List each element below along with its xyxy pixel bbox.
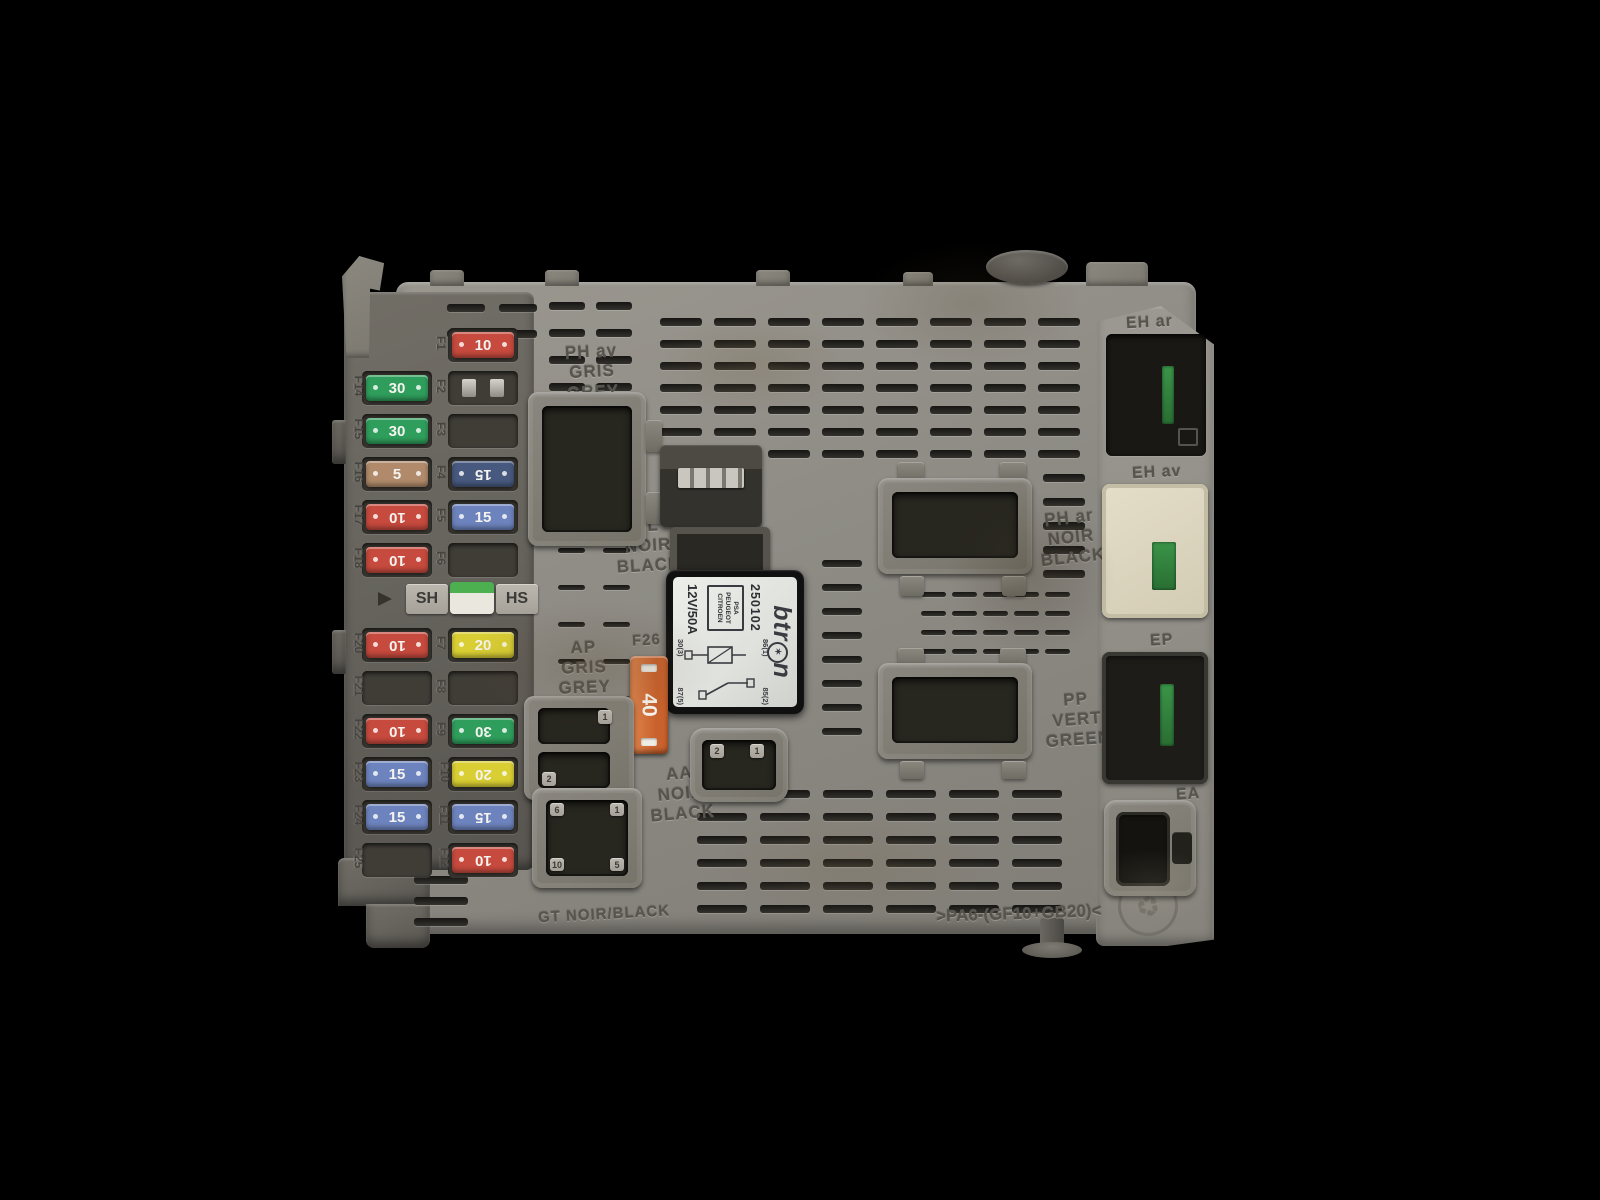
slot-label-F2: F2 [434, 379, 448, 393]
hs-plaque: HS [496, 584, 538, 614]
slot-label-F25: F25 [351, 848, 365, 869]
relay-label: btr✶n 250102 PSA PEUGEOT CITROEN 12V/50A [673, 577, 797, 707]
relay-pin-label: 87(5) [676, 687, 685, 705]
slot-label-F18: F18 [351, 548, 365, 569]
ap-pin-number: 1 [598, 710, 612, 724]
fuse-slot-F25 [362, 843, 432, 877]
slot-label-F12: F12 [437, 848, 451, 869]
pp-latch [900, 761, 924, 779]
ph-ar-cavity [892, 492, 1018, 558]
gt-pin-number: 10 [550, 858, 564, 871]
gt-pin-number: 5 [610, 858, 624, 871]
slot-label-F20: F20 [351, 633, 365, 654]
pin-number: 6 [554, 805, 559, 815]
relay-label-content: btr✶n 250102 PSA PEUGEOT CITROEN 12V/50A [674, 577, 796, 707]
fuse-F16: 5 [366, 461, 428, 487]
fuse-value: 10 [475, 852, 492, 869]
slot-label-F16: F16 [351, 462, 365, 483]
slot-label-F5: F5 [434, 508, 448, 522]
maxi-fuse-value: 40 [637, 693, 661, 716]
ea-side-tab [1172, 832, 1192, 864]
fuse-F5: 15 [452, 504, 514, 530]
oem-line: CITROEN [715, 587, 723, 629]
fuse-value: 10 [389, 509, 406, 526]
fuse-F22: 10 [366, 718, 428, 744]
slot-label-F21: F21 [351, 676, 365, 697]
fuse-slot-F21 [362, 671, 432, 705]
latch-arrow [378, 592, 392, 606]
fuse-F18: 10 [366, 547, 428, 573]
product-photo-stage: 101515303051010203020151010101515F14F15F… [0, 0, 1600, 1200]
label-text: EH ar [1126, 313, 1174, 332]
fuse-F14: 30 [366, 375, 428, 401]
label-ph-ar: PH ar NOIR BLACK [1031, 504, 1111, 571]
pp-latch [1002, 761, 1026, 779]
fuse-F11: 15 [452, 804, 514, 830]
slot-label-F3: F3 [434, 422, 448, 436]
slot-label-F24: F24 [351, 805, 365, 826]
slot-label-F22: F22 [351, 719, 365, 740]
fuse-clip [462, 379, 476, 397]
sh-plaque: SH [406, 584, 448, 614]
fuse-slot-F3 [448, 414, 518, 448]
label-line: GRIS [546, 657, 623, 680]
slot-label-F4: F4 [434, 465, 448, 479]
fuse-slot-F2 [448, 371, 518, 405]
label-text: EP [1150, 631, 1174, 649]
ep-pcb [1160, 684, 1174, 746]
fuse-value: 10 [389, 552, 406, 569]
slot-label-F10: F10 [437, 762, 451, 783]
ph-av-cavity [542, 406, 632, 532]
ph-ar-latch [900, 576, 924, 596]
relay-pin-label: 86(1) [761, 639, 770, 657]
label-text: F26 [632, 631, 662, 649]
fuse-value: 15 [389, 766, 406, 783]
fuse-F4: 15 [452, 461, 514, 487]
ea-connector [1116, 812, 1170, 886]
fuse-F17: 10 [366, 504, 428, 530]
sh-label: SH [416, 590, 438, 608]
label-ap: AP GRIS GREY [545, 637, 623, 700]
ph-ar-latch [1002, 576, 1026, 596]
fuse-F15: 30 [366, 418, 428, 444]
brand-star-icon: ✶ [767, 642, 788, 663]
fuse-F1: 10 [452, 332, 514, 358]
pin-number: 1 [614, 805, 619, 815]
ep-connector [1102, 652, 1208, 784]
relay: btr✶n 250102 PSA PEUGEOT CITROEN 12V/50A [666, 570, 804, 714]
gt-pin-number: 6 [550, 803, 564, 816]
fuse-window [641, 738, 657, 746]
brand-text: btr [768, 605, 796, 641]
relay-pin-label: 30(3) [676, 639, 685, 657]
pin-number: 1 [602, 712, 607, 722]
slot-label-F14: F14 [351, 376, 365, 397]
slot-label-F8: F8 [434, 679, 448, 693]
aa-pin-number: 2 [710, 744, 724, 758]
slot-label-F15: F15 [351, 419, 365, 440]
aa-pin-number: 1 [750, 744, 764, 758]
fuse-value: 15 [389, 809, 406, 826]
fuse-slot-F8 [448, 671, 518, 705]
fuse-value: 20 [475, 766, 492, 783]
oem-line: PSA [731, 587, 739, 629]
relay-oem-box: PSA PEUGEOT CITROEN [707, 585, 744, 631]
label-line: AP [545, 637, 622, 660]
slot-label-F6: F6 [434, 551, 448, 565]
gt-pin-number: 1 [610, 803, 624, 816]
brand-text: n [768, 663, 796, 679]
fuse-value: 20 [475, 637, 492, 654]
eh-av-pcb [1152, 542, 1176, 590]
slot-label-F17: F17 [351, 505, 365, 526]
fuse-F7: 20 [452, 632, 514, 658]
pin-number: 2 [714, 746, 719, 756]
fuse-F23: 15 [366, 761, 428, 787]
relay-part-number: 250102 [748, 584, 762, 632]
oem-line: PEUGEOT [723, 587, 731, 629]
relay-rating: 12V/50A [685, 584, 700, 635]
slot-label-F23: F23 [351, 762, 365, 783]
pin-number: 5 [614, 860, 619, 870]
fuse-value: 30 [389, 423, 406, 440]
fuse-value: 15 [475, 466, 492, 483]
fuse-F9: 30 [452, 718, 514, 744]
pin-number: 1 [754, 746, 759, 756]
pin-number: 10 [552, 860, 562, 870]
relay-schematic-drawing [678, 639, 762, 705]
relay-pin-label: 85(2) [761, 687, 770, 705]
shunt-fuse [450, 582, 494, 614]
fuse-window [641, 664, 657, 672]
pl-fuse-strip [678, 468, 744, 488]
label-ep: EP [1150, 631, 1174, 650]
fuse-F24: 15 [366, 804, 428, 830]
relay-brand-logo: btr✶n [767, 577, 796, 707]
label-f26: F26 [632, 631, 662, 649]
fuse-value: 5 [393, 466, 401, 483]
pp-cavity [892, 677, 1018, 743]
label-eh-av: EH av [1132, 463, 1182, 484]
fuse-value: 15 [475, 509, 492, 526]
relay-schematic: 86(1) 85(2) 30(3) 87(5) [678, 639, 762, 705]
fuse-value: 30 [389, 380, 406, 397]
fuse-value: 10 [389, 723, 406, 740]
maxi-fuse-f26: 40 [630, 656, 668, 754]
fuse-F12: 10 [452, 847, 514, 873]
fuse-F20: 10 [366, 632, 428, 658]
slot-label-F9: F9 [434, 722, 448, 736]
label-eh-ar: EH ar [1126, 313, 1174, 333]
fuse-F10: 20 [452, 761, 514, 787]
pin-number: 2 [546, 774, 551, 784]
ap-pin-number: 2 [542, 772, 556, 786]
eh-ar-pcb [1162, 366, 1174, 424]
eh-ar-notch [1178, 428, 1198, 446]
fuse-value: 10 [389, 637, 406, 654]
slot-label-F1: F1 [434, 336, 448, 350]
slot-label-F7: F7 [434, 636, 448, 650]
fuse-value: 30 [475, 723, 492, 740]
label-text: EH av [1132, 463, 1182, 483]
slot-label-F11: F11 [437, 805, 451, 825]
fuse-slot-F6 [448, 543, 518, 577]
fuse-clip [490, 379, 504, 397]
hs-label: HS [506, 590, 528, 608]
fuse-value: 15 [475, 809, 492, 826]
fuse-value: 10 [475, 337, 492, 354]
